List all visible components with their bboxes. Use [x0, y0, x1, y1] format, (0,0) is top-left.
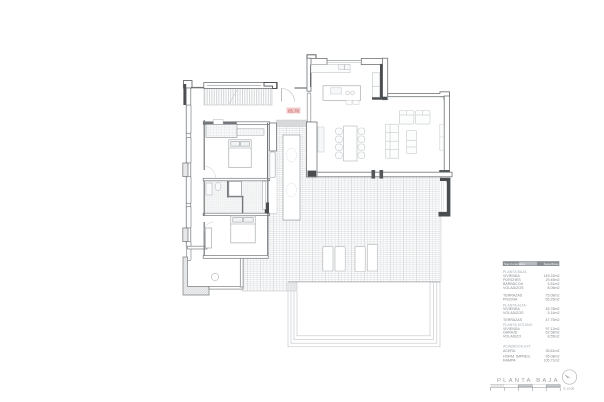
svg-text:ACABADOS EXT: ACABADOS EXT — [503, 345, 532, 349]
svg-text:VOLADIZO: VOLADIZO — [503, 335, 521, 339]
svg-text:05.78: 05.78 — [288, 108, 300, 113]
svg-text:PISCINA: PISCINA — [503, 298, 518, 302]
svg-text:8.55m2: 8.55m2 — [548, 335, 560, 339]
svg-text:Sup.Construida: Sup.Construida — [504, 262, 525, 266]
svg-text:PLANTA BAJA: PLANTA BAJA — [497, 378, 560, 384]
svg-text:VOLADIZOS: VOLADIZOS — [503, 286, 524, 290]
svg-text:105.71m2: 105.71m2 — [544, 358, 560, 362]
svg-text:35.61m2: 35.61m2 — [546, 349, 560, 353]
svg-text:5.14m2: 5.14m2 — [548, 311, 560, 315]
svg-text:ACERA: ACERA — [503, 349, 516, 353]
svg-text:VOLADIZOS: VOLADIZOS — [503, 311, 524, 315]
svg-text:55.25m2: 55.25m2 — [546, 298, 560, 302]
svg-text:8.06m2: 8.06m2 — [548, 286, 560, 290]
svg-text:E 1/100: E 1/100 — [564, 387, 575, 391]
svg-text:TERRAZAS: TERRAZAS — [503, 318, 523, 322]
svg-text:RAMPA: RAMPA — [503, 358, 516, 362]
svg-text:47.75m2: 47.75m2 — [546, 318, 560, 322]
svg-text:Superficies: Superficies — [544, 262, 559, 266]
